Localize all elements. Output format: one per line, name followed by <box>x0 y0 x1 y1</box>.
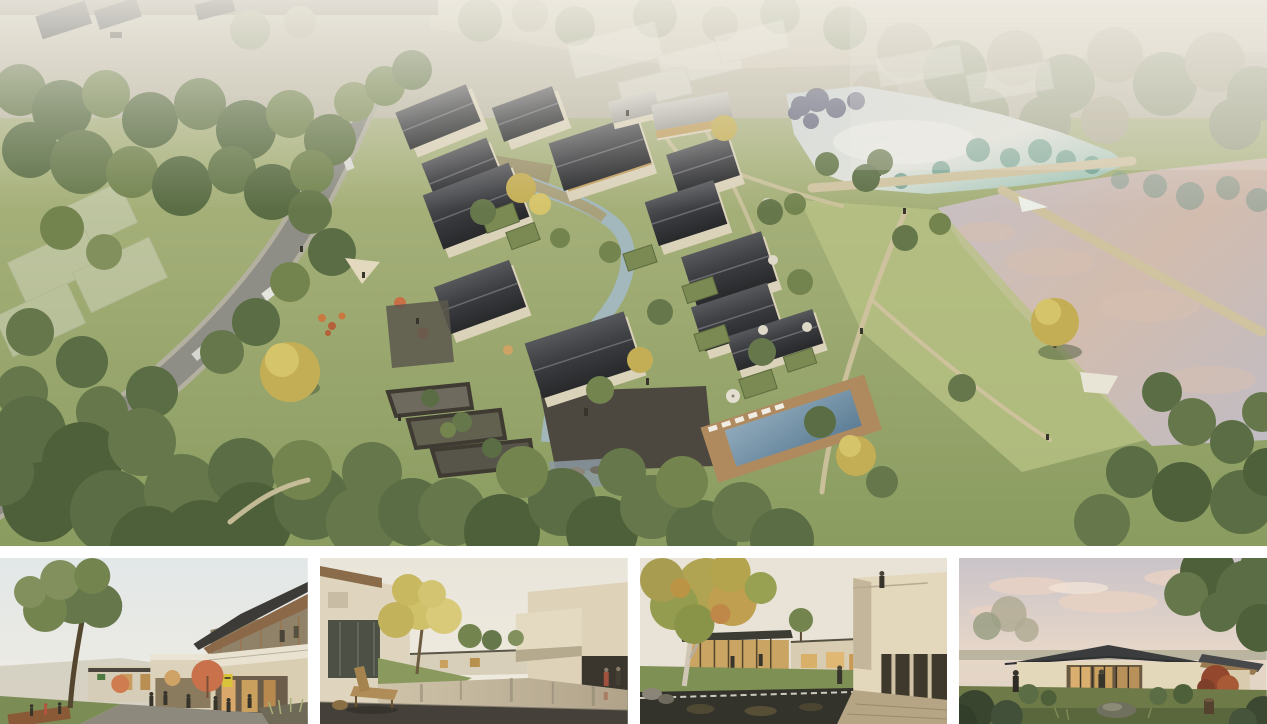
thumbnail-street-plaza <box>0 558 308 724</box>
thumbnail-reflecting-pool <box>320 558 628 724</box>
reflecting-pool-image <box>320 558 628 724</box>
pond-courtyard-image <box>640 558 948 724</box>
street-plaza-image <box>0 558 308 724</box>
aerial-render-image <box>0 0 1267 546</box>
thumbnail-pond-courtyard <box>640 558 948 724</box>
thumbnail-dusk-pavilion <box>959 558 1267 724</box>
architectural-render-collage <box>0 0 1267 724</box>
thumbnail-row <box>0 558 1267 724</box>
aerial-render <box>0 0 1267 546</box>
dusk-pavilion-image <box>959 558 1267 724</box>
haze-right <box>850 0 1267 170</box>
